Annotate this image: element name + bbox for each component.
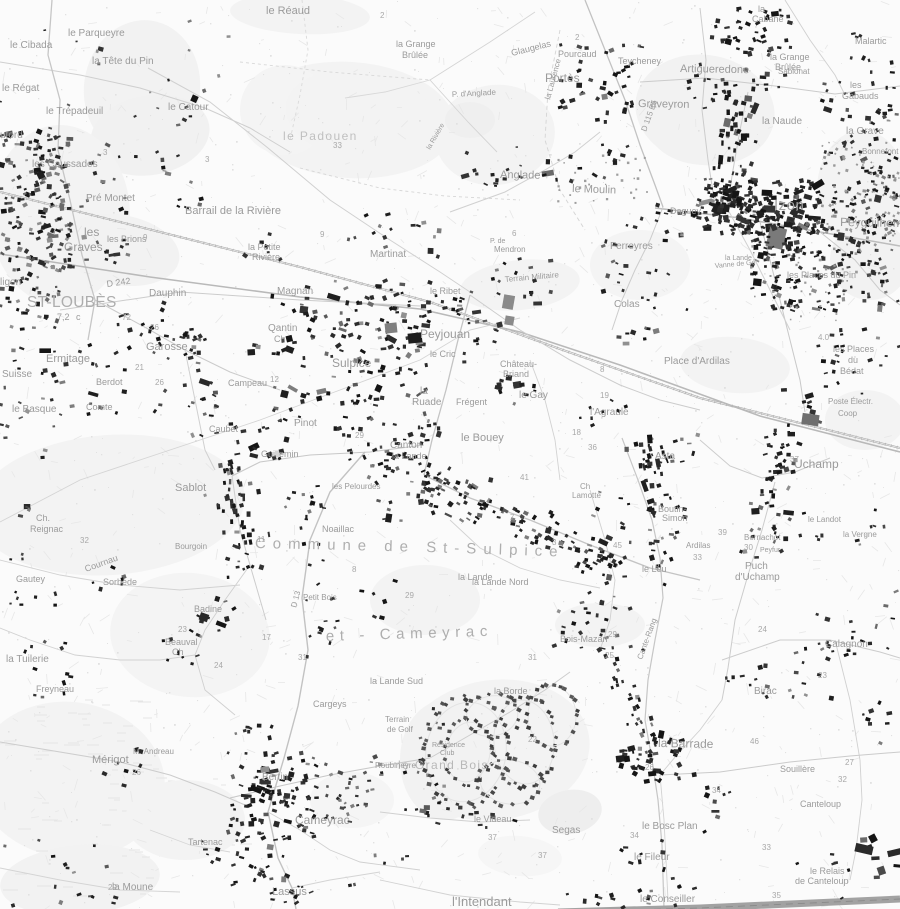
svg-text:Berdot: Berdot — [96, 377, 123, 387]
svg-text:du: du — [848, 355, 858, 365]
svg-text:le Moulin: le Moulin — [572, 183, 616, 197]
svg-text:Sulpice: Sulpice — [332, 356, 372, 370]
svg-text:la: la — [420, 386, 428, 397]
svg-text:le Cibada: le Cibada — [10, 40, 53, 51]
svg-text:la: la — [758, 4, 765, 14]
svg-text:27: 27 — [845, 758, 854, 767]
svg-text:37: 37 — [538, 851, 547, 860]
svg-text:Badine: Badine — [194, 604, 222, 614]
svg-text:Comte: Comte — [86, 402, 113, 412]
svg-text:Asta: Asta — [655, 451, 675, 462]
svg-text:32: 32 — [80, 536, 89, 545]
svg-text:Canteloup: Canteloup — [800, 799, 841, 809]
svg-text:Souillère: Souillère — [780, 764, 815, 774]
svg-text:Terrain: Terrain — [385, 715, 409, 724]
svg-text:Cabane: Cabane — [752, 14, 784, 24]
svg-text:Guillemin: Guillemin — [261, 449, 299, 459]
svg-text:26: 26 — [132, 768, 141, 777]
svg-text:Anglade: Anglade — [500, 169, 541, 182]
svg-text:7: 7 — [510, 513, 515, 522]
svg-text:les: les — [850, 80, 862, 90]
svg-text:3: 3 — [103, 148, 108, 157]
svg-text:32: 32 — [838, 775, 847, 784]
svg-text:les Brions: les Brions — [107, 234, 147, 244]
svg-text:29: 29 — [108, 883, 117, 892]
svg-text:8: 8 — [655, 563, 660, 572]
svg-text:8: 8 — [352, 565, 357, 574]
svg-text:33: 33 — [693, 553, 702, 562]
svg-text:les Caussades: les Caussades — [32, 159, 98, 170]
svg-text:la Vergne: la Vergne — [843, 530, 877, 539]
svg-text:Sablonat: Sablonat — [778, 67, 810, 76]
svg-text:Pinot: Pinot — [294, 418, 317, 429]
svg-text:le Cric: le Cric — [430, 349, 456, 359]
svg-text:Segas: Segas — [552, 825, 580, 836]
svg-text:Roubineyre: Roubineyre — [375, 761, 416, 770]
svg-text:le Bosc Plan: le Bosc Plan — [642, 821, 698, 832]
svg-text:24: 24 — [758, 625, 767, 634]
svg-text:46: 46 — [750, 737, 759, 746]
svg-text:Ch: Ch — [172, 647, 184, 657]
svg-text:la Barrade: la Barrade — [658, 736, 714, 751]
svg-text:Garosse: Garosse — [146, 341, 188, 353]
svg-text:Izon: Izon — [774, 197, 804, 214]
svg-text:Bernachot: Bernachot — [744, 533, 781, 542]
svg-text:25: 25 — [605, 651, 614, 660]
svg-text:Bonnefont: Bonnefont — [862, 147, 899, 156]
svg-text:37: 37 — [488, 833, 497, 842]
svg-text:Graves: Graves — [64, 240, 103, 254]
svg-text:c: c — [76, 312, 81, 322]
svg-text:Sablot: Sablot — [175, 482, 206, 494]
svg-text:Teycheney: Teycheney — [618, 56, 662, 66]
svg-text:Birac: Birac — [754, 686, 777, 697]
svg-text:23: 23 — [818, 671, 827, 680]
svg-text:Pré Montet: Pré Montet — [86, 193, 135, 204]
svg-text:18: 18 — [572, 428, 581, 437]
svg-text:Ch: Ch — [274, 334, 286, 344]
svg-text:le Trépadeuil: le Trépadeuil — [46, 106, 103, 117]
svg-text:Gautey: Gautey — [16, 574, 46, 584]
svg-text:Poste Électr.: Poste Électr. — [828, 397, 873, 406]
svg-text:Daguey: Daguey — [670, 206, 702, 216]
svg-text:Cameyrac: Cameyrac — [295, 813, 350, 827]
svg-text:le Régat: le Régat — [2, 83, 39, 94]
svg-text:Ermitage: Ermitage — [46, 353, 90, 365]
svg-text:Peyfur: Peyfur — [760, 547, 781, 554]
svg-text:Ardilas: Ardilas — [686, 541, 710, 550]
svg-text:Château-: Château- — [500, 359, 537, 369]
svg-text:Ruade: Ruade — [412, 397, 442, 408]
svg-text:la Grave: la Grave — [846, 126, 884, 137]
svg-text:19: 19 — [600, 391, 609, 400]
svg-text:l'Agraule: l'Agraule — [590, 407, 629, 418]
svg-text:Petit Bois: Petit Bois — [303, 593, 337, 602]
svg-text:2: 2 — [380, 11, 385, 20]
svg-text:le Ribet: le Ribet — [430, 286, 461, 296]
svg-text:les Pelourdes: les Pelourdes — [332, 482, 380, 491]
svg-text:Sorbède: Sorbède — [103, 577, 137, 587]
svg-text:Reignac: Reignac — [30, 524, 64, 534]
svg-text:2: 2 — [575, 33, 580, 42]
svg-text:de Canteloup: de Canteloup — [795, 876, 849, 886]
svg-text:Dauphin: Dauphin — [149, 288, 186, 299]
svg-text:21: 21 — [135, 363, 144, 372]
svg-text:Uchamp: Uchamp — [794, 457, 839, 471]
svg-text:Lassus: Lassus — [272, 886, 307, 898]
svg-text:33: 33 — [333, 141, 342, 150]
svg-text:6: 6 — [512, 229, 517, 238]
svg-text:la Moune: la Moune — [112, 882, 154, 893]
svg-text:29: 29 — [608, 630, 617, 639]
svg-text:Mérigot: Mérigot — [92, 754, 129, 766]
svg-text:31: 31 — [298, 653, 307, 662]
svg-text:9: 9 — [320, 230, 325, 239]
svg-text:le Padouen: le Padouen — [283, 129, 358, 143]
svg-text:le Gay: le Gay — [519, 390, 548, 401]
svg-text:l'Intendant: l'Intendant — [452, 894, 512, 909]
svg-text:le Réaud: le Réaud — [266, 5, 310, 17]
svg-text:Pourcaud: Pourcaud — [558, 49, 597, 59]
svg-text:Ch.: Ch. — [36, 513, 50, 523]
svg-text:Campeau: Campeau — [228, 378, 267, 388]
svg-text:Ferreyres: Ferreyres — [610, 241, 653, 252]
svg-text:35: 35 — [772, 891, 781, 900]
svg-text:Caubet: Caubet — [209, 424, 239, 434]
svg-text:les Places du Pin: les Places du Pin — [787, 270, 856, 280]
svg-text:le Relais: le Relais — [810, 866, 845, 876]
svg-text:Suisse: Suisse — [2, 369, 32, 380]
svg-text:Artigueredone: Artigueredone — [680, 63, 749, 76]
svg-text:72: 72 — [122, 313, 131, 322]
svg-text:Bertin: Bertin — [262, 772, 288, 783]
svg-text:Bédat: Bédat — [840, 366, 864, 376]
svg-text:le Parqueyre: le Parqueyre — [68, 28, 125, 39]
svg-text:26: 26 — [155, 378, 164, 387]
svg-text:la Grange: la Grange — [396, 39, 436, 49]
svg-text:26: 26 — [150, 323, 159, 332]
svg-text:Tartenac: Tartenac — [188, 837, 223, 847]
svg-text:le Catour: le Catour — [168, 102, 209, 113]
svg-text:45: 45 — [613, 541, 622, 550]
svg-text:le Fileur: le Fileur — [634, 852, 670, 863]
svg-text:Peyguilhem: Peyguilhem — [840, 215, 900, 230]
svg-text:Résidence: Résidence — [432, 742, 465, 749]
svg-text:Ch: Ch — [580, 482, 590, 491]
svg-text:Simon: Simon — [662, 513, 688, 523]
svg-text:Lamotte: Lamotte — [572, 491, 601, 500]
svg-text:la Lande Sud: la Lande Sud — [370, 676, 423, 686]
svg-text:d'Uchamp: d'Uchamp — [735, 572, 780, 583]
svg-text:le Landot: le Landot — [808, 515, 842, 524]
svg-text:P. de: P. de — [490, 238, 506, 245]
svg-text:9: 9 — [143, 233, 148, 242]
svg-text:la Petite: la Petite — [248, 242, 281, 252]
svg-text:Calagnon: Calagnon — [825, 639, 868, 650]
svg-text:26: 26 — [645, 763, 654, 772]
svg-text:7,2: 7,2 — [57, 312, 70, 322]
svg-text:23: 23 — [178, 625, 187, 634]
svg-text:Puch: Puch — [745, 561, 768, 572]
svg-text:la Grange: la Grange — [770, 52, 810, 62]
svg-text:Martinat: Martinat — [370, 249, 406, 260]
svg-text:le Bouey: le Bouey — [461, 432, 504, 444]
svg-text:Peyjouan: Peyjouan — [420, 327, 470, 341]
svg-text:Bois-Mazan: Bois-Mazan — [560, 634, 608, 644]
svg-text:le Videau: le Videau — [474, 814, 511, 824]
svg-text:3: 3 — [205, 155, 210, 164]
svg-text:24: 24 — [214, 661, 223, 670]
svg-text:Place d'Ardilas: Place d'Ardilas — [664, 356, 730, 367]
svg-text:la Lande: la Lande — [725, 255, 752, 262]
svg-text:36: 36 — [588, 443, 597, 452]
svg-text:Rivière: Rivière — [252, 252, 280, 262]
svg-text:Beauval: Beauval — [165, 637, 198, 647]
svg-text:ligon: ligon — [0, 277, 21, 288]
svg-text:Graveyron: Graveyron — [638, 98, 690, 111]
svg-text:Freyneau: Freyneau — [36, 684, 74, 694]
svg-text:la Lande: la Lande — [392, 451, 427, 461]
svg-text:29: 29 — [355, 431, 364, 440]
svg-text:Mendron: Mendron — [494, 245, 526, 254]
svg-text:Colas: Colas — [614, 299, 640, 310]
svg-text:30: 30 — [744, 543, 753, 552]
svg-text:les Places: les Places — [833, 344, 875, 354]
svg-text:11: 11 — [257, 535, 266, 544]
svg-text:34: 34 — [712, 786, 721, 795]
svg-text:Briand: Briand — [503, 369, 529, 379]
svg-text:ST-LOUBÈS: ST-LOUBÈS — [27, 294, 117, 311]
svg-text:la Lande Nord: la Lande Nord — [472, 577, 529, 587]
svg-text:17: 17 — [262, 633, 271, 642]
svg-text:12: 12 — [270, 375, 279, 384]
svg-text:Coop: Coop — [838, 409, 858, 418]
svg-text:4.0: 4.0 — [818, 333, 830, 342]
svg-text:la Tuilerie: la Tuilerie — [6, 654, 49, 665]
svg-text:Bourgoin: Bourgoin — [175, 542, 207, 551]
svg-text:Brûlée: Brûlée — [402, 50, 428, 60]
svg-text:31: 31 — [528, 653, 537, 662]
svg-text:Malartic: Malartic — [855, 36, 887, 46]
svg-text:Cargeys: Cargeys — [313, 699, 347, 709]
svg-text:Club: Club — [440, 750, 455, 757]
svg-text:le Conseiller: le Conseiller — [640, 894, 696, 905]
svg-text:les: les — [84, 225, 99, 239]
svg-text:le Basque: le Basque — [12, 404, 57, 415]
svg-text:22: 22 — [528, 735, 537, 744]
svg-text:33: 33 — [762, 843, 771, 852]
svg-text:29: 29 — [405, 591, 414, 600]
svg-text:34: 34 — [630, 831, 639, 840]
svg-text:37: 37 — [790, 455, 799, 464]
svg-text:Noaillac: Noaillac — [322, 524, 355, 534]
svg-text:Frégent: Frégent — [456, 397, 488, 407]
svg-text:Qantin: Qantin — [268, 323, 297, 334]
svg-text:Canton: Canton — [390, 440, 422, 451]
svg-text:de Golf: de Golf — [387, 725, 414, 734]
svg-text:39: 39 — [718, 528, 727, 537]
svg-text:3: 3 — [552, 538, 557, 547]
svg-text:la Tête du Pin: la Tête du Pin — [92, 56, 154, 67]
svg-text:utord: utord — [0, 130, 23, 141]
svg-text:Barrail de la Rivière: Barrail de la Rivière — [185, 205, 281, 217]
svg-text:41: 41 — [520, 473, 529, 482]
svg-text:la Borde: la Borde — [494, 686, 528, 696]
svg-text:M. Andreau: M. Andreau — [133, 747, 174, 756]
svg-text:Magnan: Magnan — [277, 286, 313, 297]
svg-text:la Naude: la Naude — [762, 116, 802, 127]
svg-text:Gabauds: Gabauds — [842, 91, 879, 101]
svg-text:8: 8 — [600, 365, 605, 374]
